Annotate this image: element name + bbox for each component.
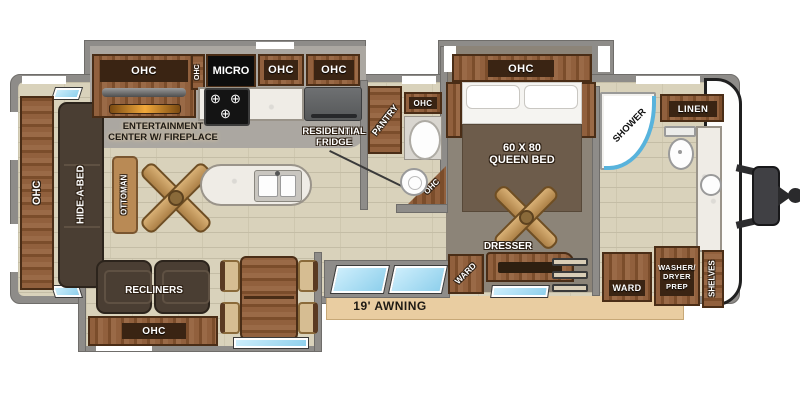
window-rear-upper — [10, 112, 18, 160]
floorplan: 19' AWNING OHC HIDE-A-BED OTTOMAN — [0, 0, 800, 400]
shelves-label: SHELVES — [704, 252, 722, 306]
queen-bed-label: 60 X 80 QUEEN BED — [470, 140, 574, 168]
bedroom-ohc-label: OHC — [488, 60, 554, 77]
dinette-chair — [220, 302, 240, 334]
tv-icon — [102, 88, 186, 97]
patio-window — [331, 266, 389, 293]
microwave: MICRO — [206, 54, 256, 88]
fridge-label: RESIDENTIAL FRIDGE — [296, 126, 372, 150]
stove-cooktop: ⊕ ⊕ ⊕ — [204, 88, 250, 126]
window-top-center — [402, 76, 436, 84]
vanity-sink — [409, 120, 441, 160]
burner-icon: ⊕ — [220, 106, 231, 122]
entry-step — [552, 258, 588, 266]
living-slide-window — [234, 338, 308, 348]
fridge-handle — [311, 114, 357, 118]
dinette-chair — [298, 260, 318, 292]
window-kitchen-slide — [256, 42, 294, 49]
fireplace-icon — [109, 104, 181, 114]
kitchen-side-ohc: OHC — [191, 54, 205, 90]
nightstand-left — [446, 82, 462, 138]
burner-icon: ⊕ — [210, 91, 221, 107]
bedroom-ohc: OHC — [452, 54, 592, 82]
window-rear-lower — [10, 224, 18, 272]
recliners-ohc-label: OHC — [122, 323, 186, 339]
midbath-ohc-label: OHC — [409, 97, 437, 109]
bath-toilet — [668, 138, 694, 170]
bedroom-ward: WARD — [448, 254, 484, 294]
linen-label: LINEN — [669, 101, 717, 117]
entry-step — [552, 284, 588, 292]
pillow — [466, 85, 520, 109]
burner-icon: ⊕ — [230, 91, 241, 107]
midbath-vanity — [404, 116, 442, 160]
recliners-label: RECLINERS — [98, 284, 210, 298]
linen-cabinet: LINEN — [660, 94, 724, 122]
rear-ohc-label: OHC — [22, 98, 52, 288]
awning-label: 19' AWNING — [330, 298, 450, 316]
bath-sink — [700, 174, 722, 196]
dinette-chair — [220, 260, 240, 292]
bath-ward-label: WARD — [609, 280, 645, 296]
hitch-ball-icon — [788, 188, 800, 203]
washer-dryer-prep: WASHER/ DRYER PREP — [654, 246, 700, 306]
propane-cover — [752, 166, 780, 226]
sink-basin — [258, 175, 278, 197]
bedroom-ward-label: WARD — [442, 250, 490, 298]
entertainment-cabinet: OHC — [92, 54, 196, 118]
kitchen-ohc-1: OHC — [258, 54, 304, 86]
washer-dryer-label: WASHER/ DRYER PREP — [660, 258, 694, 296]
entry-step — [552, 271, 588, 279]
midbath-ohc: OHC — [404, 92, 442, 114]
toilet-tank — [664, 126, 696, 137]
faucet-icon — [275, 171, 280, 176]
patio-window — [389, 266, 447, 293]
kitchen-ohc-2: OHC — [306, 54, 360, 86]
bath-ward: WARD — [602, 252, 652, 302]
dinette-table — [240, 256, 298, 340]
residential-fridge — [304, 87, 362, 121]
entertainment-ohc-label: OHC — [100, 60, 188, 82]
pillow — [524, 85, 578, 109]
shelves: SHELVES — [702, 250, 724, 308]
nightstand-right — [580, 82, 596, 138]
window-top-rear — [22, 76, 66, 84]
bath-counter — [696, 126, 722, 252]
microwave-label: MICRO — [208, 56, 254, 86]
window-top-front — [636, 76, 700, 84]
sink-basin — [280, 175, 296, 197]
kitchen-island — [200, 164, 312, 206]
window-corner-topleft — [52, 88, 82, 99]
table-leaf-seam — [244, 296, 294, 299]
entry-door-window — [491, 286, 549, 297]
kitchen-ohc-2-label: OHC — [314, 60, 354, 80]
midbath-toilet — [400, 168, 428, 196]
dinette-chair — [298, 302, 318, 334]
rear-ohc-cabinet: OHC — [20, 96, 54, 290]
kitchen-side-ohc-label: OHC — [193, 56, 203, 88]
pantry-cabinet: PANTRY — [368, 86, 402, 154]
recliners-ohc: OHC — [88, 316, 218, 346]
window-bed-slide-right — [598, 46, 610, 72]
kitchen-ohc-1-label: OHC — [264, 60, 298, 80]
midbath-bottom-wall — [396, 204, 448, 213]
island-sink — [254, 170, 302, 202]
